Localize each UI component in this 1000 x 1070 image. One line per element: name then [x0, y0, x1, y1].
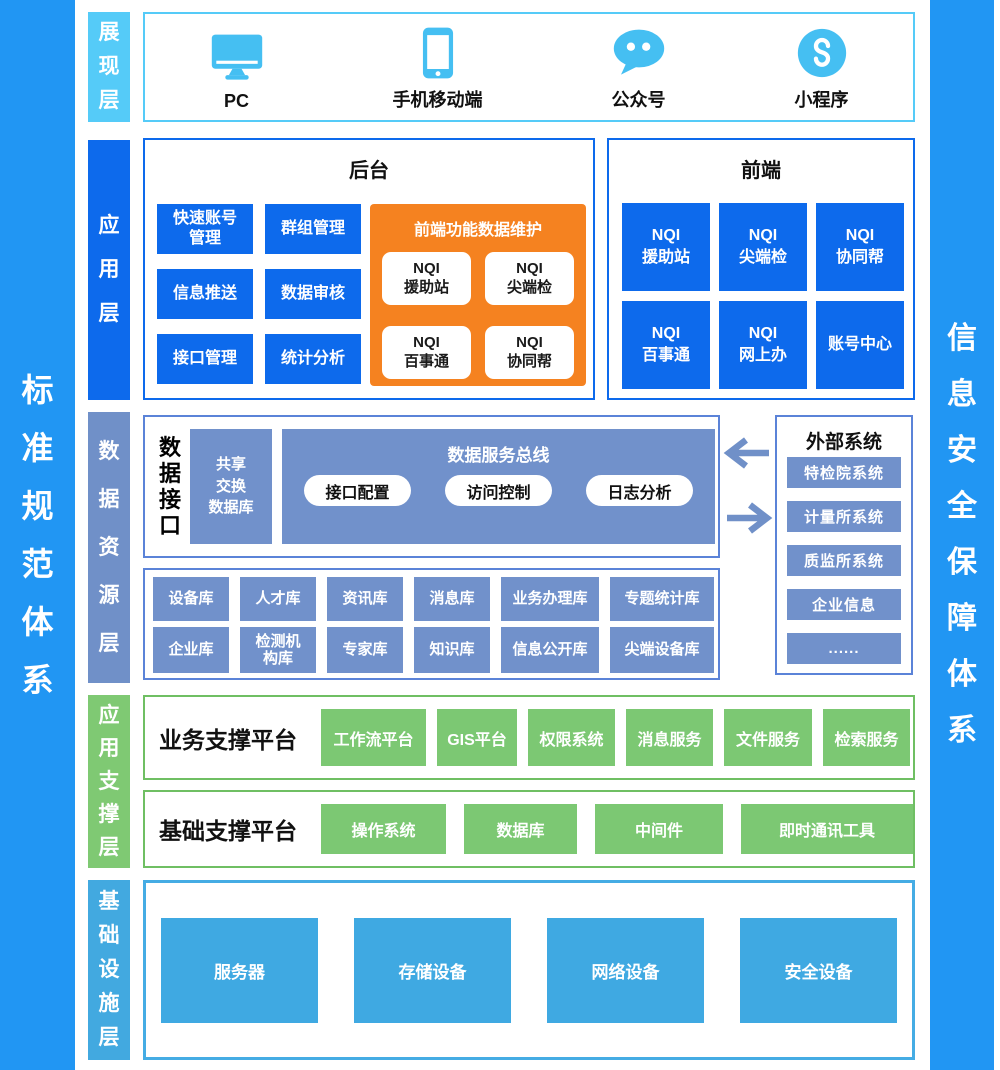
bus-functions: 接口配置 访问控制 日志分析 — [304, 475, 693, 506]
backend-module: 群组管理 — [265, 204, 361, 254]
right-banner-security: 信 息 安 全 保 障 体 系 — [930, 0, 994, 1070]
external-systems-title: 外部系统 — [777, 427, 911, 454]
basic-support-item: 中间件 — [595, 804, 723, 854]
device-label: 手机移动端 — [393, 86, 483, 112]
left-banner-standards: 标 准 规 范 体 系 — [0, 0, 75, 1070]
external-system: 特检院系统 — [787, 457, 901, 488]
infrastructure-item: 网络设备 — [547, 918, 704, 1023]
architecture-diagram: 标 准 规 范 体 系 信 息 安 全 保 障 体 系 展 现 层 PC — [0, 0, 1000, 1070]
basic-support-title: 基础支撑平台 — [159, 812, 319, 846]
device-official-account: 公众号 — [612, 14, 666, 120]
frontend-module: NQI 网上办 — [719, 301, 807, 389]
business-support-title: 业务支撑平台 — [159, 721, 319, 755]
database-item: 资讯库 — [327, 577, 403, 621]
presentation-layer-panel: PC 手机移动端 公众号 — [143, 12, 915, 122]
frontend-title: 前端 — [609, 154, 913, 183]
basic-support-item: 即时通讯工具 — [741, 804, 913, 854]
infrastructure-item: 存储设备 — [354, 918, 511, 1023]
maintenance-module: NQI 协同帮 — [485, 326, 574, 379]
external-system: 计量所系统 — [787, 501, 901, 532]
business-support-item: 检索服务 — [823, 709, 910, 766]
backend-module: 接口管理 — [157, 334, 253, 384]
frontend-panel: 前端 NQI 援助站 NQI 尖端检 NQI 协同帮 NQI 百事通 NQI 网… — [607, 138, 915, 400]
backend-module: 信息推送 — [157, 269, 253, 319]
business-support-item: 权限系统 — [528, 709, 615, 766]
data-interface-title: 数 据 接 口 — [151, 417, 189, 556]
databases-panel: 设备库 人才库 资讯库 消息库 业务办理库 专题统计库 企业库 检测机 构库 专… — [143, 568, 720, 680]
frontend-module: NQI 百事通 — [622, 301, 710, 389]
database-item: 人才库 — [240, 577, 316, 621]
device-label: 公众号 — [612, 86, 666, 112]
external-systems-list: 特检院系统 计量所系统 质监所系统 企业信息 ...... — [787, 457, 901, 664]
database-item: 检测机 构库 — [240, 627, 316, 673]
basic-support-panel: 基础支撑平台 操作系统 数据库 中间件 即时通讯工具 — [143, 790, 915, 868]
official-account-icon — [612, 24, 666, 82]
backend-module: 数据审核 — [265, 269, 361, 319]
infrastructure-panel: 服务器 存储设备 网络设备 安全设备 — [143, 880, 915, 1060]
data-interface-panel: 数 据 接 口 共享 交换 数据库 数据服务总线 接口配置 访问控制 日志分析 — [143, 415, 720, 558]
backend-title: 后台 — [145, 154, 593, 183]
maintenance-module: NQI 尖端检 — [485, 252, 574, 305]
database-item: 尖端设备库 — [610, 627, 714, 673]
maintenance-grid: NQI 援助站 NQI 尖端检 NQI 百事通 NQI 协同帮 — [382, 252, 574, 379]
database-item: 知识库 — [414, 627, 490, 673]
database-item: 业务办理库 — [501, 577, 599, 621]
bus-function: 接口配置 — [304, 475, 411, 506]
bus-title: 数据服务总线 — [282, 441, 715, 466]
shared-exchange-db: 共享 交换 数据库 — [190, 429, 272, 544]
basic-support-item: 数据库 — [464, 804, 577, 854]
frontend-module: NQI 协同帮 — [816, 203, 904, 291]
frontend-module: 账号中心 — [816, 301, 904, 389]
database-item: 企业库 — [153, 627, 229, 673]
external-systems-panel: 外部系统 特检院系统 计量所系统 质监所系统 企业信息 ...... — [775, 415, 913, 675]
maintenance-title: 前端功能数据维护 — [370, 216, 586, 240]
database-item: 信息公开库 — [501, 627, 599, 673]
frontend-module: NQI 尖端检 — [719, 203, 807, 291]
business-support-item: GIS平台 — [437, 709, 517, 766]
infrastructure-item: 安全设备 — [740, 918, 897, 1023]
business-support-panel: 业务支撑平台 工作流平台 GIS平台 权限系统 消息服务 文件服务 检索服务 — [143, 695, 915, 780]
backend-module: 统计分析 — [265, 334, 361, 384]
app-support-layer-label: 应 用 支 撑 层 — [88, 695, 130, 868]
device-mini-program: 小程序 — [795, 14, 849, 120]
presentation-layer-label: 展 现 层 — [88, 12, 130, 122]
device-label: 小程序 — [795, 86, 849, 112]
device-pc: PC — [210, 14, 264, 120]
infrastructure-layer-label: 基 础 设 施 层 — [88, 880, 130, 1060]
business-support-item: 消息服务 — [626, 709, 713, 766]
frontend-module: NQI 援助站 — [622, 203, 710, 291]
database-item: 专题统计库 — [610, 577, 714, 621]
databases-grid: 设备库 人才库 资讯库 消息库 业务办理库 专题统计库 企业库 检测机 构库 专… — [153, 577, 714, 673]
bus-function: 访问控制 — [445, 475, 552, 506]
mini-program-icon — [796, 24, 848, 82]
infrastructure-item: 服务器 — [161, 918, 318, 1023]
database-item: 消息库 — [414, 577, 490, 621]
device-mobile: 手机移动端 — [393, 14, 483, 120]
application-layer-label: 应 用 层 — [88, 140, 130, 400]
business-support-item: 工作流平台 — [321, 709, 426, 766]
frontend-data-maintenance-panel: 前端功能数据维护 NQI 援助站 NQI 尖端检 NQI 百事通 NQI 协同帮 — [370, 204, 586, 386]
bus-function: 日志分析 — [586, 475, 693, 506]
business-support-item: 文件服务 — [724, 709, 812, 766]
frontend-module-grid: NQI 援助站 NQI 尖端检 NQI 协同帮 NQI 百事通 NQI 网上办 … — [622, 203, 904, 389]
database-item: 设备库 — [153, 577, 229, 621]
external-system: 企业信息 — [787, 589, 901, 620]
device-label: PC — [224, 91, 249, 112]
data-service-bus: 数据服务总线 接口配置 访问控制 日志分析 — [282, 429, 715, 544]
database-item: 专家库 — [327, 627, 403, 673]
basic-support-items: 操作系统 数据库 中间件 即时通讯工具 — [321, 804, 913, 854]
external-system: ...... — [787, 633, 901, 664]
backend-panel: 后台 快速账号 管理 群组管理 信息推送 数据审核 接口管理 统计分析 前端功能… — [143, 138, 595, 400]
business-support-items: 工作流平台 GIS平台 权限系统 消息服务 文件服务 检索服务 — [321, 709, 910, 766]
smartphone-icon — [422, 24, 454, 82]
maintenance-module: NQI 百事通 — [382, 326, 471, 379]
data-resource-layer-label: 数 据 资 源 层 — [88, 412, 130, 683]
backend-module: 快速账号 管理 — [157, 204, 253, 254]
pc-monitor-icon — [210, 29, 264, 87]
backend-module-grid: 快速账号 管理 群组管理 信息推送 数据审核 接口管理 统计分析 — [157, 204, 361, 384]
maintenance-module: NQI 援助站 — [382, 252, 471, 305]
arrow-left-icon — [723, 435, 771, 476]
basic-support-item: 操作系统 — [321, 804, 446, 854]
external-system: 质监所系统 — [787, 545, 901, 576]
arrow-right-icon — [725, 500, 773, 541]
